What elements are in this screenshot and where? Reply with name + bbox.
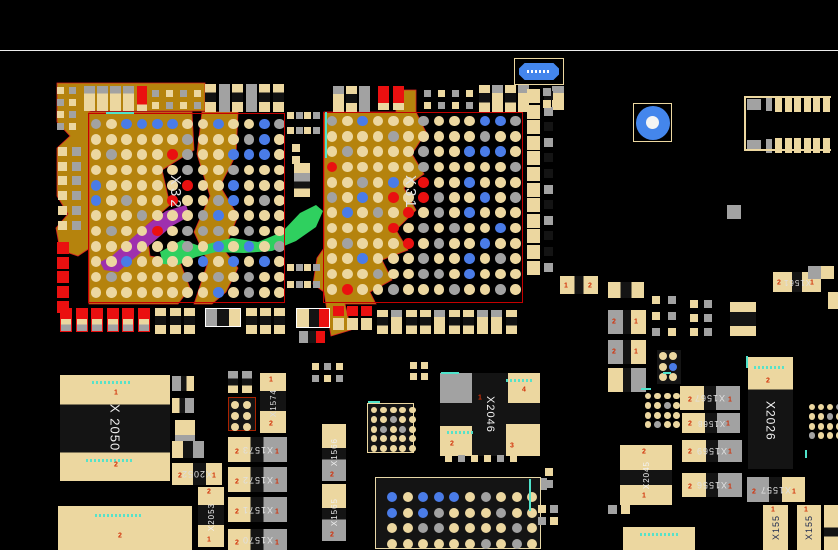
x32-left-pairs-sq[interactable] — [58, 176, 67, 185]
pads-above-x32-mid-sq[interactable] — [180, 102, 187, 109]
red-bar-378[interactable] — [378, 86, 389, 110]
x31-right-col-sqs-sq[interactable] — [544, 200, 553, 209]
pads-above-x32-mid-sq[interactable] — [166, 102, 173, 109]
x31-right-col-sqs-sq[interactable] — [544, 231, 553, 240]
pin-number: 1 — [207, 537, 211, 544]
mini-array-5x5-pad[interactable] — [409, 416, 416, 423]
x32-left-red-col-sq[interactable] — [57, 286, 69, 298]
bga-bottom-pads-pad[interactable] — [434, 508, 444, 518]
small-seg-midstrip[interactable] — [299, 331, 325, 343]
chip-x2026[interactable]: X2026 — [748, 357, 793, 469]
corner-bar[interactable] — [824, 505, 838, 550]
mini-array-5x5-pad[interactable] — [409, 445, 416, 452]
bga-bottom-pads-pad[interactable] — [465, 492, 475, 502]
pads-topleft-sq[interactable] — [69, 111, 76, 118]
x31-right-col-bars-pad[interactable] — [527, 136, 540, 150]
bga-bottom-pads-pad[interactable] — [387, 523, 397, 533]
pin-number: 2 — [766, 378, 770, 385]
mini-array-5x5-pad[interactable] — [390, 445, 397, 452]
cluster-r1-sq[interactable] — [668, 328, 676, 336]
chip-x2046-pad-4[interactable] — [506, 424, 540, 456]
red-sq-361[interactable] — [361, 306, 372, 316]
gray-square-727[interactable] — [727, 205, 741, 219]
pads-below-x31-pad[interactable] — [434, 310, 445, 334]
mini-array-5x5-pad[interactable] — [390, 435, 397, 442]
midstrip-bot-pairs-sq[interactable] — [313, 281, 320, 288]
bga-bottom-pads-pad[interactable] — [481, 523, 491, 533]
midstrip-sm-sq[interactable] — [292, 156, 300, 164]
x31-right-col-bars-pad[interactable] — [527, 183, 540, 197]
pads-topleft-sq[interactable] — [69, 99, 76, 106]
cluster-r1-sq[interactable] — [652, 296, 660, 304]
tiny-pad-828[interactable] — [828, 292, 838, 309]
bga-x32-outline[interactable] — [88, 113, 285, 303]
net-label-mark — [92, 381, 130, 384]
cluster-r1-sq[interactable] — [652, 312, 660, 320]
x32-left-pairs-sq[interactable] — [58, 162, 67, 171]
pad-strip-623[interactable] — [623, 527, 695, 550]
circ-comp-2x3-pad[interactable] — [669, 363, 677, 371]
chip-x155-b[interactable]: X155 — [797, 505, 821, 550]
pads-above-x32-left-pad[interactable] — [97, 86, 108, 111]
midstrip-bot-pairs-sq[interactable] — [296, 281, 303, 288]
mini-array-5x5-pad[interactable] — [399, 445, 406, 452]
cluster-r1-sq[interactable] — [668, 312, 676, 320]
mini-array-5x5-pad[interactable] — [380, 416, 387, 423]
x31-right-col-bars-pad[interactable] — [527, 167, 540, 181]
pads-above-x31-mid-sq[interactable] — [424, 102, 431, 109]
cluster-r2-sq[interactable] — [690, 314, 698, 322]
red-bar-137[interactable] — [137, 86, 147, 111]
red-sq-333[interactable] — [333, 306, 344, 316]
bga-bottom-pads-pad[interactable] — [449, 539, 459, 549]
x31-right-col-bars-pad[interactable] — [527, 105, 540, 119]
x31-right-col-sqs-sq[interactable] — [544, 185, 553, 194]
bga-bottom-pads-pad[interactable] — [481, 492, 491, 502]
pin-number: 1 — [771, 507, 775, 514]
vcomp-midstrip[interactable] — [294, 163, 310, 197]
x31-right-col-sqs-sq[interactable] — [544, 169, 553, 178]
pads-above-x31-left-pad[interactable] — [346, 86, 357, 112]
pads-topleft-sq[interactable] — [57, 87, 64, 94]
cluster-b-sq[interactable] — [550, 517, 558, 525]
chip-x1570-label: X1570 — [242, 535, 273, 545]
cyan-mark-8 — [663, 372, 671, 374]
pads-above-x32-mid-sq[interactable] — [166, 90, 173, 97]
cluster-a-sq[interactable] — [312, 375, 319, 382]
chip-x1567-label: X1567 — [694, 393, 725, 403]
cluster-bot-sq[interactable] — [484, 455, 491, 462]
circ-comp-2x3-pad[interactable] — [659, 373, 667, 381]
bga-bottom-pads-pad[interactable] — [403, 492, 413, 502]
chip-x1561-label: X1561 — [783, 278, 811, 287]
x31-right-col-sqs-sq[interactable] — [544, 247, 553, 256]
bga-bottom-pads-pad[interactable] — [403, 523, 413, 533]
white-outline-comp-b[interactable] — [296, 308, 330, 328]
pin-number: 1 — [792, 489, 796, 496]
x31-right-col-sqs-sq[interactable] — [544, 216, 553, 225]
cluster-r2-sq[interactable] — [704, 328, 712, 336]
pads-below-x31-pad[interactable] — [377, 310, 388, 334]
cluster-a-sq[interactable] — [324, 363, 331, 370]
pads-above-x32-mid-sq[interactable] — [194, 102, 201, 109]
cluster-r2-sq[interactable] — [690, 300, 698, 308]
cluster-e-sq[interactable] — [608, 505, 617, 514]
pads-below-x31-pad[interactable] — [406, 310, 417, 334]
bracket-top-bars-pad[interactable] — [823, 97, 830, 112]
bga-bottom-pads-pad[interactable] — [512, 539, 522, 549]
pads-below-x31-pad[interactable] — [391, 310, 402, 334]
bga-x31-outline[interactable] — [323, 112, 523, 303]
pads-above-x31-mid-sq[interactable] — [452, 102, 459, 109]
cluster-b-sq[interactable] — [550, 505, 558, 513]
red-bar-393[interactable] — [393, 86, 404, 110]
bga-bottom-pads-pad[interactable] — [481, 508, 491, 518]
bracket-top-bars-pad[interactable] — [813, 97, 820, 112]
x32-left-pairs-sq[interactable] — [72, 206, 81, 215]
pads-above-x32-left-pad[interactable] — [110, 86, 121, 111]
mini-array-5x5-pad[interactable] — [390, 407, 397, 414]
array-right-edge-pad[interactable] — [827, 423, 834, 430]
midstrip-bot-pairs-sq[interactable] — [304, 264, 311, 271]
mini-array-5x5-pad[interactable] — [409, 407, 416, 414]
bga-bottom-pads-pad[interactable] — [512, 523, 522, 533]
pads-above-x31-mid-sq[interactable] — [424, 90, 431, 97]
bracket-top-bars-pad[interactable] — [804, 97, 811, 112]
pad-block-bottom-left[interactable] — [58, 506, 192, 550]
chip-x2046[interactable]: X2046 — [440, 373, 540, 456]
x32-left-pairs-sq[interactable] — [58, 191, 67, 200]
midstrip-bot-pairs-sq[interactable] — [313, 264, 320, 271]
bracket-gray-1[interactable] — [747, 99, 761, 110]
x32-left-pairs-sq[interactable] — [72, 162, 81, 171]
passive-stack-1[interactable] — [608, 282, 644, 298]
pads-below-x32-red-pad[interactable] — [91, 308, 103, 332]
cluster-bot-sq[interactable] — [497, 455, 504, 462]
pcb-canvas[interactable]: X 2050X2046X2026X2045X2052X2053X1574X157… — [0, 0, 838, 550]
pads-above-x32-right-pad[interactable] — [259, 84, 270, 112]
circ-comp-2x3-pad[interactable] — [659, 363, 667, 371]
connector-outline-box[interactable] — [514, 58, 564, 85]
x32-left-red-col-sq[interactable] — [57, 271, 69, 283]
far-right-pad[interactable] — [808, 266, 834, 279]
pads-below-x31-red-bases-pad[interactable] — [361, 318, 372, 330]
pin-number: 2 — [612, 349, 616, 356]
pads-topleft-sq[interactable] — [57, 111, 64, 118]
cyan-mark-4 — [441, 372, 459, 374]
cluster-a-sq[interactable] — [312, 363, 319, 370]
bga-bottom-pads-pad[interactable] — [403, 508, 413, 518]
cluster-bot-sq[interactable] — [471, 455, 478, 462]
pads-above-x31-right-sm-sq[interactable] — [543, 88, 551, 96]
pads-below-x32-a-pad[interactable] — [184, 308, 195, 334]
bga-bottom-pads-pad[interactable] — [434, 539, 444, 549]
midstrip-bot-pairs-sq[interactable] — [287, 281, 294, 288]
cluster-r2-sq[interactable] — [704, 314, 712, 322]
cluster-b-sq[interactable] — [538, 517, 546, 525]
pads-above-x31-mid-sq[interactable] — [466, 90, 473, 97]
cyan-mark-3 — [529, 479, 531, 511]
midstrip-bot-pairs-sq[interactable] — [304, 281, 311, 288]
cluster-r1-sq[interactable] — [652, 328, 660, 336]
cluster-c-sq[interactable] — [421, 362, 428, 369]
array-4x4-pad[interactable] — [654, 412, 661, 419]
net-label-mark — [506, 379, 532, 382]
x31-right-col-bars-pad[interactable] — [527, 245, 540, 259]
comp-730[interactable] — [730, 302, 756, 336]
x31-right-col-bars-pad[interactable] — [527, 151, 540, 165]
x31-right-col-bars-pad[interactable] — [527, 214, 540, 228]
x31-right-col-sqs-sq[interactable] — [544, 263, 553, 272]
pads-above-x31-right-pad[interactable] — [479, 85, 490, 112]
bga-bottom-pads-pad[interactable] — [418, 508, 428, 518]
left-passive-4[interactable] — [172, 441, 204, 458]
midstrip-bot-pairs-sq[interactable] — [287, 264, 294, 271]
red-sq-347[interactable] — [347, 306, 358, 316]
pin-number: 2 — [235, 540, 239, 547]
bga-bottom-pads-pad[interactable] — [434, 492, 444, 502]
x31-right-col-sqs-sq[interactable] — [544, 138, 553, 147]
bracket-top-bars-pad[interactable] — [794, 97, 801, 112]
pads-above-x31-right-pad[interactable] — [505, 85, 516, 112]
mini-array-5x5-pad[interactable] — [380, 445, 387, 452]
mini-array-5x5-pad[interactable] — [371, 426, 378, 433]
x32-left-red-col-sq[interactable] — [57, 301, 69, 313]
circ-comp-2x3-pad[interactable] — [669, 352, 677, 360]
x31-right-col-sqs-sq[interactable] — [544, 153, 553, 162]
mini-array-5x5-pad[interactable] — [399, 426, 406, 433]
bga-bottom-pads-pad[interactable] — [387, 492, 397, 502]
pads-above-x32-right-pad[interactable] — [246, 84, 257, 112]
pads-above-x31-mid-sq[interactable] — [452, 90, 459, 97]
cyan-mark-1 — [106, 112, 134, 114]
cluster-bot-sq[interactable] — [445, 455, 452, 462]
cluster-c-sq[interactable] — [410, 362, 417, 369]
mini-array-5x5-pad[interactable] — [380, 426, 387, 433]
pads-below-x31-red-bases-pad[interactable] — [333, 318, 344, 330]
pads-below-x31-pad[interactable] — [477, 310, 488, 334]
pads-above-x32-mid-sq[interactable] — [152, 90, 159, 97]
mini-array-5x5-pad[interactable] — [409, 426, 416, 433]
bga-bottom-pads-pad[interactable] — [403, 539, 413, 549]
pads-below-x32-red-pad[interactable] — [138, 308, 150, 332]
bracket-top-bars-pad[interactable] — [785, 97, 792, 112]
pads-topleft-sq[interactable] — [69, 123, 76, 130]
array-4x4-pad[interactable] — [664, 421, 671, 428]
bga-bottom-pads-pad[interactable] — [496, 539, 506, 549]
midstrip-top-pairs-sq[interactable] — [304, 112, 311, 119]
pads-below-x31-pad[interactable] — [420, 310, 431, 334]
x32-left-red-col-sq[interactable] — [57, 257, 69, 269]
x31-right-col-bars-pad[interactable] — [527, 120, 540, 134]
pads-above-x31-left-pad[interactable] — [359, 86, 370, 112]
pin-number: 2 — [688, 449, 692, 456]
blue-pill-connector[interactable] — [519, 63, 559, 80]
circular-test-point[interactable] — [636, 106, 670, 140]
pads-above-x31-mid-sq[interactable] — [466, 102, 473, 109]
pads-above-x32-mid-sq[interactable] — [152, 102, 159, 109]
pads-topleft-sq[interactable] — [69, 87, 76, 94]
pin-number: 2 — [207, 489, 211, 496]
bga-bottom-pads-pad[interactable] — [465, 523, 475, 533]
tiny-vert-1[interactable] — [228, 371, 238, 393]
mini-array-5x5-pad[interactable] — [371, 445, 378, 452]
bar-552[interactable] — [552, 86, 564, 110]
pads-below-x32-red-pad[interactable] — [76, 308, 88, 332]
pads-above-x32-right-pad[interactable] — [273, 84, 284, 112]
pads-below-x32-red-pad[interactable] — [122, 308, 134, 332]
array-4x4-pad[interactable] — [673, 412, 680, 419]
pads-above-x32-left-pad[interactable] — [123, 86, 134, 111]
pads-above-x31-right-sm-sq[interactable] — [543, 100, 551, 108]
bga-bottom-pads-pad[interactable] — [387, 508, 397, 518]
x32-left-pairs-sq[interactable] — [72, 221, 81, 230]
pads-above-x31-left-pad[interactable] — [333, 86, 344, 112]
pads-below-x32-a-pad[interactable] — [170, 308, 181, 334]
pads-below-x31-pad[interactable] — [449, 310, 460, 334]
cluster-c-sq[interactable] — [421, 373, 428, 380]
cluster-a-sq[interactable] — [336, 375, 343, 382]
midstrip-sm-sq[interactable] — [292, 144, 300, 152]
cluster-a-sq[interactable] — [336, 363, 343, 370]
pin-number: 1 — [634, 319, 638, 326]
pin-number: 2 — [688, 484, 692, 491]
pads-above-x31-mid-sq[interactable] — [438, 90, 445, 97]
pads-above-x32-right-pad[interactable] — [232, 84, 243, 112]
cluster-d-sq[interactable] — [545, 468, 553, 476]
pin-number: 2 — [688, 421, 692, 428]
x31-right-col-bars-pad[interactable] — [527, 198, 540, 212]
bga-bottom-pads-pad[interactable] — [465, 508, 475, 518]
bga-bottom-pads-pad[interactable] — [465, 539, 475, 549]
cluster-c-sq[interactable] — [410, 373, 417, 380]
midstrip-top-pairs-sq[interactable] — [296, 127, 303, 134]
x32-left-pairs-sq[interactable] — [72, 147, 81, 156]
chip-x155-a[interactable]: X155 — [763, 505, 788, 550]
pads-below-x31-red-bases-pad[interactable] — [347, 318, 358, 330]
cluster-bot-sq[interactable] — [458, 455, 465, 462]
pads-below-x31-pad[interactable] — [506, 310, 517, 334]
circ-comp-2x3-pad[interactable] — [669, 373, 677, 381]
array-4x4-pad[interactable] — [664, 402, 671, 409]
x31-right-col-sqs-sq[interactable] — [544, 122, 553, 131]
pads-above-x32-mid-sq[interactable] — [194, 90, 201, 97]
chip-x1557-label: X1557 — [760, 485, 791, 495]
mini-array-5x5-pad[interactable] — [390, 426, 397, 433]
x32-left-pairs-sq[interactable] — [58, 206, 67, 215]
pads-above-x32-right-pad[interactable] — [219, 84, 230, 112]
mini-array-5x5-pad[interactable] — [390, 416, 397, 423]
pads-above-x31-mid-sq[interactable] — [438, 102, 445, 109]
cluster-a-sq[interactable] — [324, 375, 331, 382]
pads-above-x32-mid-sq[interactable] — [180, 90, 187, 97]
pin-number: 1 — [810, 280, 814, 287]
bracket-top-bars-pad[interactable] — [775, 97, 782, 112]
midstrip-top-pairs-sq[interactable] — [287, 112, 294, 119]
bga-bottom-pads-pad[interactable] — [481, 539, 491, 549]
cluster-bot-sq[interactable] — [510, 455, 517, 462]
pin-number: 2 — [588, 283, 592, 290]
pads-below-x32-b-pad[interactable] — [274, 308, 285, 334]
array-4x4-pad[interactable] — [645, 412, 652, 419]
bga-bottom-pads-pad[interactable] — [512, 508, 522, 518]
pads-below-x32-b-pad[interactable] — [246, 308, 257, 334]
white-outline-comp-a[interactable] — [205, 308, 241, 327]
midstrip-top-pairs-sq[interactable] — [313, 112, 320, 119]
bga-bottom-pads-pad[interactable] — [527, 539, 537, 549]
bga-bottom-pads-pad[interactable] — [512, 492, 522, 502]
test-point-outline-box[interactable] — [633, 103, 672, 142]
bga-bottom-pads-pad[interactable] — [496, 508, 506, 518]
pads-below-x31-pad[interactable] — [491, 310, 502, 334]
chip-x1572-label: X1572 — [242, 475, 273, 485]
cluster-r1-sq[interactable] — [668, 296, 676, 304]
pin-number: 1 — [275, 479, 279, 486]
mini-array-5x5-pad[interactable] — [409, 435, 416, 442]
chip-x1574-label: X1574 — [269, 389, 278, 417]
pads-topleft-sq[interactable] — [57, 99, 64, 106]
x31-right-col-bars-pad[interactable] — [527, 261, 540, 275]
pads-below-x32-b-pad[interactable] — [260, 308, 271, 334]
x32-left-pairs-sq[interactable] — [72, 191, 81, 200]
array-4x4-pad[interactable] — [654, 402, 661, 409]
bga-bottom-pads-pad[interactable] — [418, 539, 428, 549]
x32-left-pairs-sq[interactable] — [58, 147, 67, 156]
cyan-mark-9 — [805, 450, 807, 458]
pin-number: 2 — [269, 421, 273, 428]
array-right-edge-pad[interactable] — [818, 423, 825, 430]
pads-topleft-sq[interactable] — [57, 123, 64, 130]
tiny-vert-2[interactable] — [242, 371, 252, 393]
pads-above-x31-right-pad[interactable] — [492, 85, 503, 112]
left-passive-2[interactable] — [172, 398, 194, 413]
bga-bottom-pads-pad[interactable] — [449, 508, 459, 518]
midstrip-top-pairs-sq[interactable] — [313, 127, 320, 134]
bracket-gray-2[interactable] — [766, 97, 772, 111]
bga-bottom-pads-pad[interactable] — [387, 539, 397, 549]
array-4x4-pad[interactable] — [664, 393, 671, 400]
x31-right-col-bars-pad[interactable] — [527, 229, 540, 243]
pads-below-x32-a-pad[interactable] — [155, 308, 166, 334]
cluster-r2-sq[interactable] — [690, 328, 698, 336]
pads-below-x32-red-pad[interactable] — [107, 308, 119, 332]
x31-right-col-bars-pad[interactable] — [527, 89, 540, 103]
array-4x4-pad[interactable] — [664, 412, 671, 419]
pads-below-x31-pad[interactable] — [463, 310, 474, 334]
array-right-edge-pad[interactable] — [809, 423, 816, 430]
cluster-e-sq[interactable] — [621, 505, 630, 514]
pads-above-x32-right-pad[interactable] — [205, 84, 216, 112]
midstrip-top-pairs-sq[interactable] — [296, 112, 303, 119]
x32-left-pairs-sq[interactable] — [58, 221, 67, 230]
midstrip-top-pairs-sq[interactable] — [304, 127, 311, 134]
chip-x2046-pad-1[interactable] — [440, 373, 472, 403]
pin-number: 2 — [777, 280, 781, 287]
x32-left-red-col-sq[interactable] — [57, 242, 69, 254]
left-passive-1[interactable] — [172, 376, 194, 391]
midstrip-bot-pairs-sq[interactable] — [296, 264, 303, 271]
bga-bottom-pads-pad[interactable] — [434, 523, 444, 533]
pads-above-x32-left-pad[interactable] — [84, 86, 95, 111]
x32-left-pairs-sq[interactable] — [72, 176, 81, 185]
cluster-b-sq[interactable] — [538, 505, 546, 513]
cluster-r2-sq[interactable] — [704, 300, 712, 308]
circ-comp-2x3-pad[interactable] — [659, 352, 667, 360]
cluster-d-sq[interactable] — [545, 480, 553, 488]
midstrip-top-pairs-sq[interactable] — [287, 127, 294, 134]
pin-number: 2 — [688, 397, 692, 404]
pin-number: 3 — [510, 443, 514, 450]
